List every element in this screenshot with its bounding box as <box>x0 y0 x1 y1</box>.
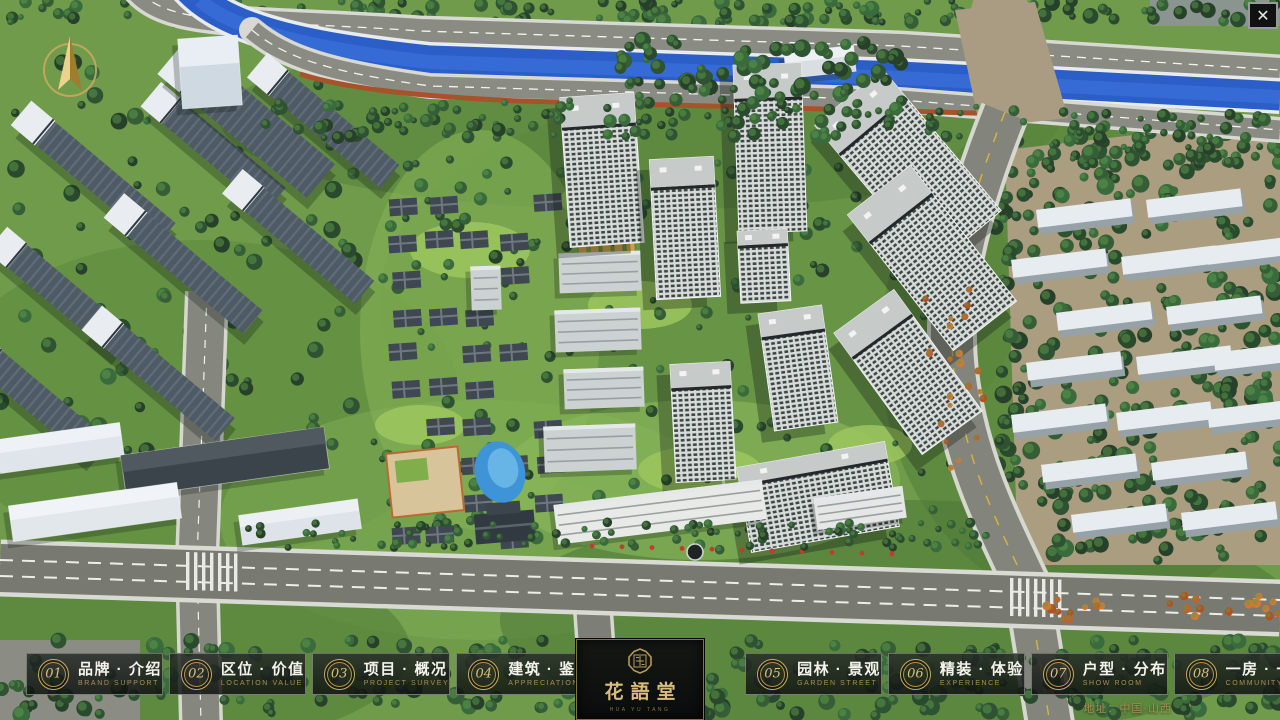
nav-item-sublabel: COMMUNITY <box>1226 680 1280 687</box>
close-icon[interactable]: ✕ <box>1248 2 1278 29</box>
nav-number-badge: 05 <box>757 659 788 690</box>
nav-number-badge: 03 <box>324 659 355 690</box>
nav-item-label: 品牌 · 介绍 <box>78 662 162 677</box>
nav-item-label: 户型 · 分布 <box>1083 662 1167 677</box>
nav-item-04[interactable]: 04 建筑 · 鉴赏 APPRECIATION <box>456 653 593 695</box>
nav-item-02[interactable]: 02 区位 · 价值 LOCATION VALUE <box>169 653 306 695</box>
sales-presentation-screen: ✕ 01 品牌 · 介绍 BRAND SUPPORT 02 区位 · 价值 LO… <box>0 0 1280 720</box>
nav-item-06[interactable]: 06 精装 · 体验 EXPERIENCE <box>888 653 1025 695</box>
nav-number-badge: 01 <box>38 659 69 690</box>
logo-title: 花語堂 <box>597 677 682 704</box>
nav-group-left: 01 品牌 · 介绍 BRAND SUPPORT 02 区位 · 价值 LOCA… <box>26 653 593 695</box>
compass-icon <box>34 30 106 108</box>
nav-item-label: 精装 · 体验 <box>940 662 1024 677</box>
nav-item-07[interactable]: 07 户型 · 分布 SHOW ROOM <box>1031 653 1168 695</box>
nav-number-badge: 06 <box>900 659 931 690</box>
tower-building <box>635 156 721 310</box>
nav-item-sublabel: GARDEN STREET <box>797 680 881 687</box>
nav-number-badge: 08 <box>1186 659 1217 690</box>
logo-subtitle: HUA YU TANG <box>610 707 671 713</box>
nav-item-sublabel: EXPERIENCE <box>940 680 1024 687</box>
nav-number-badge: 04 <box>468 659 499 690</box>
aerial-map[interactable] <box>0 0 1280 720</box>
nav-item-05[interactable]: 05 园林 · 景观 GARDEN STREET <box>745 653 882 695</box>
nav-group-right: 05 园林 · 景观 GARDEN STREET 06 精装 · 体验 EXPE… <box>745 653 1280 695</box>
nav-item-sublabel: LOCATION VALUE <box>221 680 305 687</box>
nav-number-badge: 07 <box>1043 659 1074 690</box>
seal-icon <box>627 648 653 674</box>
nav-item-label: 项目 · 概况 <box>364 662 450 677</box>
nav-item-01[interactable]: 01 品牌 · 介绍 BRAND SUPPORT <box>26 653 163 695</box>
address-label: 地址：中国·山西 <box>1083 700 1172 716</box>
nav-item-sublabel: PROJECT SURVEY <box>364 680 450 687</box>
nav-item-label: 区位 · 价值 <box>221 662 305 677</box>
nav-item-08[interactable]: 08 一房 · 一景 COMMUNITY <box>1174 653 1280 695</box>
nav-number-badge: 02 <box>181 659 212 690</box>
nav-item-label: 一房 · 一景 <box>1226 662 1280 677</box>
nav-item-sublabel: SHOW ROOM <box>1083 680 1167 687</box>
project-logo[interactable]: 花語堂 HUA YU TANG <box>576 639 704 720</box>
nav-item-sublabel: BRAND SUPPORT <box>78 680 162 687</box>
tower-building <box>656 362 737 494</box>
nav-item-label: 园林 · 景观 <box>797 662 881 677</box>
nav-item-03[interactable]: 03 项目 · 概况 PROJECT SURVEY <box>312 653 451 695</box>
